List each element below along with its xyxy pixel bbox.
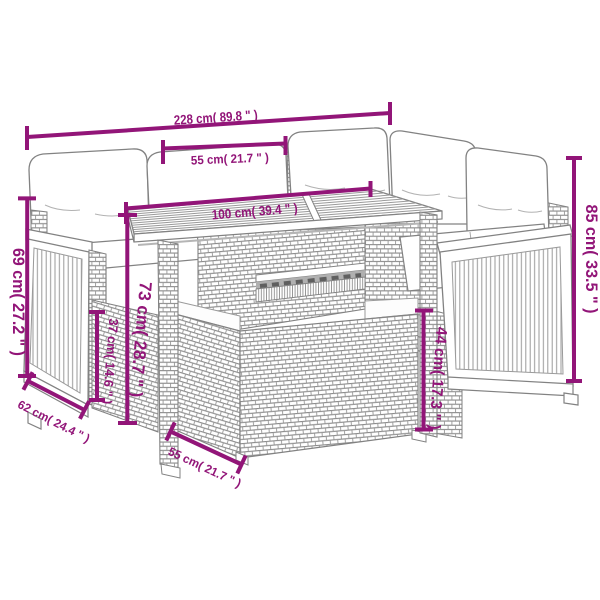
svg-text:69 cm( 27.2 " ): 69 cm( 27.2 " ) <box>9 248 27 356</box>
svg-text:85 cm( 33.5 " ): 85 cm( 33.5 " ) <box>582 205 600 314</box>
